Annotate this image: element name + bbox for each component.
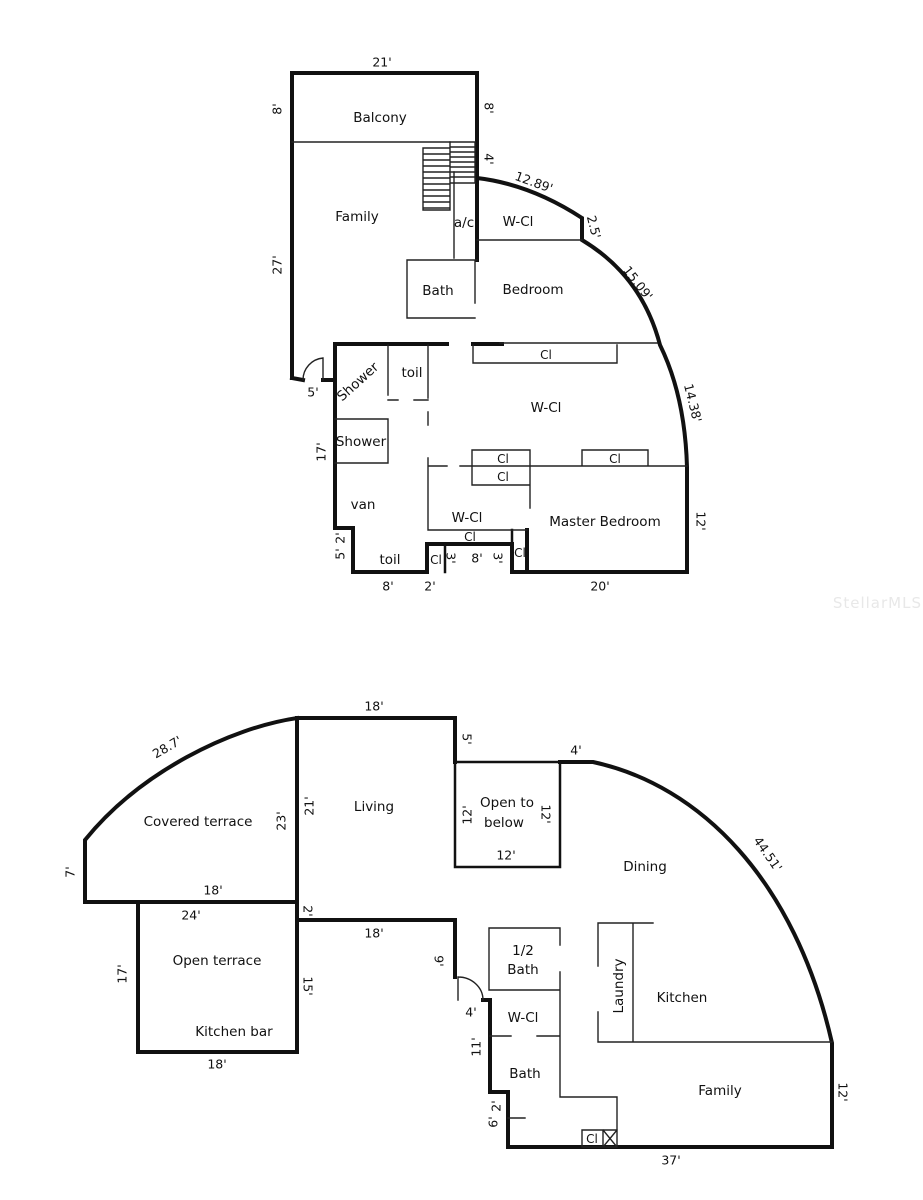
dim-step-side: 5' (333, 548, 348, 559)
room-label-open-below-1: Open to (480, 795, 534, 811)
dim-open-terrace-bottom: 18' (207, 1057, 226, 1072)
room-label-wcl-mid: W-Cl (531, 400, 562, 416)
dim-terrace-bottom: 18' (203, 883, 222, 898)
dim-balcony-left: 8' (270, 103, 285, 114)
room-label-half-bath-1: 1/2 (512, 943, 534, 959)
room-label-wcl-lower: W-Cl (508, 1010, 539, 1026)
room-label-toil-a: toil (401, 365, 422, 381)
closet-label-lower: Cl (586, 1132, 598, 1146)
closet-label-a: Cl (497, 452, 509, 466)
room-label-van: van (351, 497, 376, 513)
dim-terrace-curve: 28.7' (150, 733, 185, 762)
room-label-bedroom: Bedroom (502, 282, 563, 298)
room-label-open-terrace: Open terrace (173, 953, 262, 969)
dim-balcony-width: 21' (372, 55, 391, 70)
dim-hall-right: 9' (432, 955, 447, 966)
room-label-master-bedroom: Master Bedroom (549, 514, 660, 530)
dim-family-left: 27' (270, 255, 285, 274)
dim-master-right: 12' (694, 511, 709, 530)
dim-living-left-outer: 23' (274, 811, 289, 830)
closet-label-b: Cl (497, 470, 509, 484)
room-label-half-bath-2: Bath (507, 962, 538, 978)
dim-jog: 2' (301, 905, 316, 916)
upper-entry-door-arc (303, 358, 323, 380)
dim-master-bottom: 20' (590, 579, 609, 594)
room-label-family-lower: Family (698, 1083, 741, 1099)
dim-shower-left: 17' (314, 442, 329, 461)
dim-living-top: 18' (364, 699, 383, 714)
dim-living-right: 5' (460, 733, 475, 744)
dim-wall-step: 2.5' (584, 214, 604, 240)
dim-family-right: 12' (836, 1082, 851, 1101)
closet-label-niche-1: Cl (430, 553, 442, 567)
dim-step-side-lower: 6' (486, 1116, 501, 1127)
room-label-kitchen: Kitchen (657, 990, 708, 1006)
dim-dining-top: 4' (570, 743, 581, 758)
room-label-laundry: Laundry (611, 958, 627, 1013)
dim-notch-left: 3' (444, 552, 459, 563)
room-label-family-upper: Family (335, 209, 378, 225)
room-label-open-below-2: below (484, 815, 524, 831)
dim-balcony-right: 8' (482, 102, 497, 113)
dim-entry-door-lower: 4' (465, 1005, 476, 1020)
dim-notch-bottom: 2' (424, 579, 435, 594)
closet-label-c: Cl (609, 452, 621, 466)
dim-hall-top: 18' (364, 926, 383, 941)
dim-family-bottom: 37' (661, 1153, 680, 1168)
lower-interior-walls (489, 923, 832, 1147)
room-label-covered-terrace: Covered terrace (144, 814, 253, 830)
room-label-dining: Dining (623, 859, 667, 875)
room-label-wcl-top: W-Cl (503, 214, 534, 230)
dim-entry-door-upper: 5' (307, 385, 318, 400)
dim-notch-right: 3' (491, 552, 506, 563)
closet-label-bedroom: Cl (540, 348, 552, 362)
room-label-shower-a: Shower (334, 359, 382, 405)
room-label-kitchen-bar: Kitchen bar (195, 1024, 273, 1040)
dim-terrace-left: 7' (63, 866, 78, 877)
dim-otb-left: 12' (460, 805, 475, 824)
room-label-wcl-low: W-Cl (452, 510, 483, 526)
room-label-bath-lower: Bath (509, 1066, 540, 1082)
closet-label-niche-2: Cl (514, 546, 526, 560)
floor-plan-drawing: 21' Balcony 8' 8' Family 27' 4' 12.89' 2… (0, 0, 923, 1200)
dim-curve-c: 14.38' (681, 382, 705, 424)
dim-open-terrace-left: 17' (115, 964, 130, 983)
dim-step-top-lower: 2' (489, 1100, 504, 1111)
upper-interior-walls (292, 142, 687, 530)
lower-entry-door-arc (458, 977, 483, 1000)
room-label-living: Living (354, 799, 394, 815)
closet-label-small: Cl (464, 530, 476, 544)
dim-otb-bottom: 12' (496, 848, 515, 863)
room-label-shower-b: Shower (336, 434, 387, 450)
dim-otb-right: 12' (539, 804, 554, 823)
room-label-balcony: Balcony (353, 110, 407, 126)
dim-open-terrace-right: 15' (301, 976, 316, 995)
dim-notch-mid: 8' (471, 551, 482, 566)
dim-bath-left: 11' (469, 1037, 484, 1056)
dim-toil-bottom: 8' (382, 579, 393, 594)
dim-stair-right: 4' (482, 153, 497, 164)
upper-stairs (423, 142, 475, 210)
room-label-bath-upper: Bath (422, 283, 453, 299)
dim-living-left-inner: 21' (302, 796, 317, 815)
floor-plan-page: 21' Balcony 8' 8' Family 27' 4' 12.89' 2… (0, 0, 923, 1200)
dim-step-top: 2' (333, 532, 348, 543)
room-label-ac: a/c (454, 215, 474, 231)
room-label-toil-b: toil (379, 552, 400, 568)
dim-open-terrace-top: 24' (181, 908, 200, 923)
watermark: StellarMLS (833, 594, 922, 612)
